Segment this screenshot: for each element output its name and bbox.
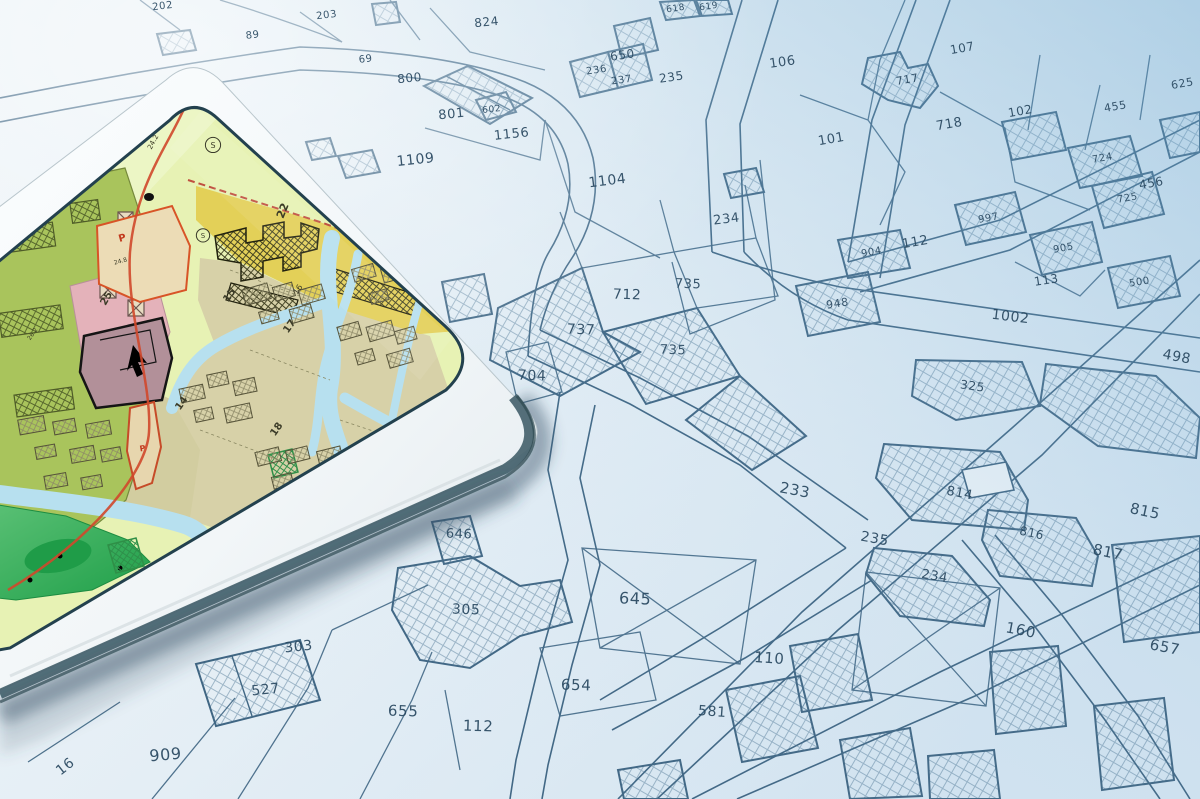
parcel-number-label: 654 bbox=[561, 675, 592, 694]
parcel-number-label: 712 bbox=[613, 287, 642, 304]
zone-label: S bbox=[210, 141, 215, 150]
parcel-number-label: 704 bbox=[518, 368, 547, 385]
zone-label: S bbox=[201, 232, 206, 240]
parcel-number-label: 655 bbox=[388, 701, 419, 720]
parcel-number-label: 110 bbox=[754, 648, 786, 668]
parcel-number-label: 824 bbox=[474, 14, 500, 31]
parcel-number-label: 800 bbox=[397, 70, 423, 87]
parcel-number-label: 735 bbox=[660, 343, 687, 359]
parcel-number-label: 112 bbox=[463, 716, 494, 735]
parcel-number-label: 737 bbox=[567, 322, 596, 339]
parcel-number-label: 735 bbox=[675, 277, 702, 293]
parcel-number-label: 602 bbox=[482, 104, 502, 116]
parcel-number-label: 303 bbox=[284, 638, 314, 657]
parcel-number-label: 645 bbox=[619, 588, 652, 608]
tree-dot bbox=[144, 193, 154, 201]
parcel-number-label: 801 bbox=[438, 106, 466, 124]
cadastral-map: 2022038969824800801602115611096502362376… bbox=[0, 0, 1200, 799]
cadastral-map-photo: 2022038969824800801602115611096502362376… bbox=[0, 0, 1200, 799]
parcel-number-label: 69 bbox=[358, 53, 373, 66]
parcel-number-label: 305 bbox=[452, 602, 481, 619]
parcel-number-label: 89 bbox=[245, 29, 260, 42]
parcel-number-label: 581 bbox=[697, 703, 727, 721]
parcel-number-label: 909 bbox=[149, 744, 183, 766]
parcel-number-label: 527 bbox=[251, 681, 281, 700]
